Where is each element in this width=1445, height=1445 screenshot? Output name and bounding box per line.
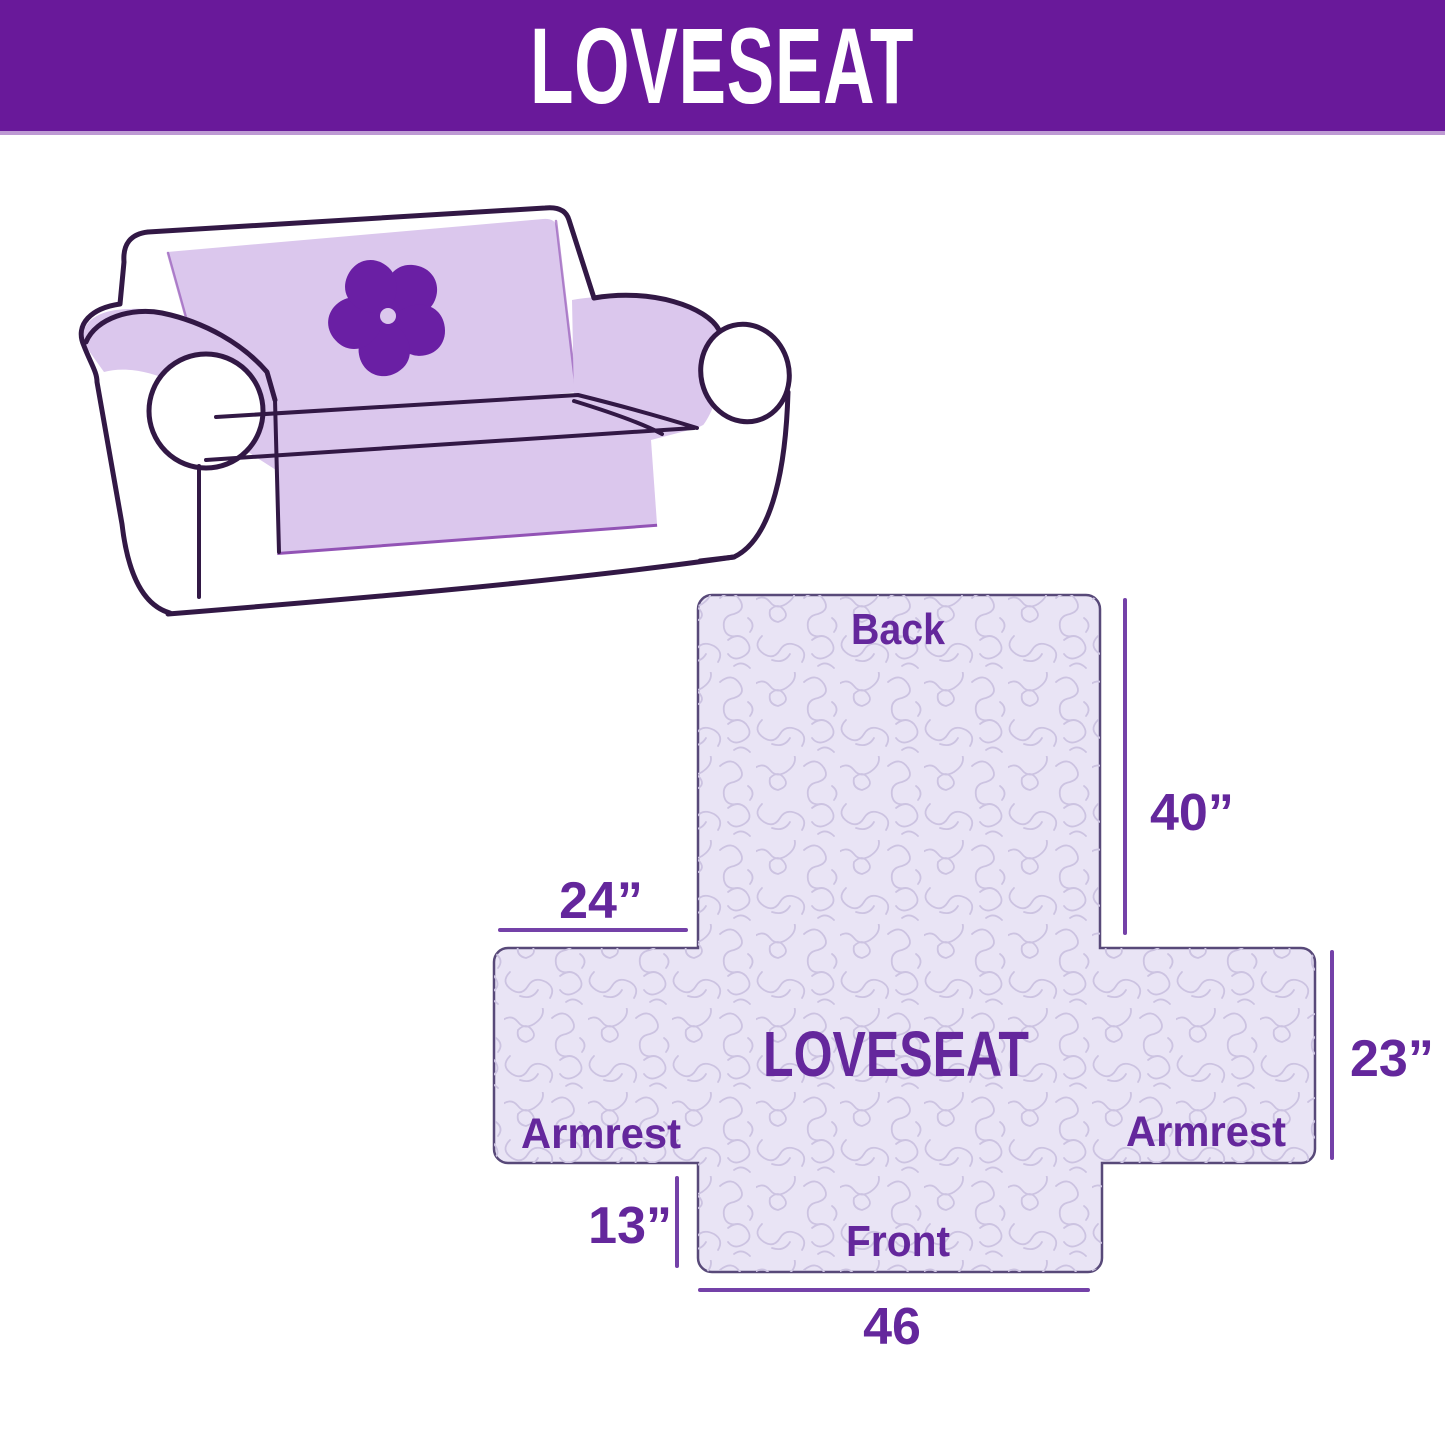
front-label: Front <box>846 1217 950 1266</box>
armrest-left-label: Armrest <box>521 1110 681 1158</box>
header-title: LOVESEAT <box>530 0 914 131</box>
loveseat-cover-infographic: LOVESEAT <box>0 0 1445 1445</box>
armrest-side-height-value: 23” <box>1350 1030 1434 1088</box>
product-label: LOVESEAT <box>763 1018 1029 1090</box>
back-height-value: 40” <box>1150 784 1234 842</box>
cover-quilt-texture <box>494 595 1315 1272</box>
cover-dimension-diagram: Back LOVESEAT Armrest Armrest Front 40” … <box>440 560 1445 1380</box>
back-label: Back <box>851 605 945 654</box>
front-skirt-height-value: 13” <box>588 1197 672 1255</box>
armrest-top-width-value: 24” <box>559 872 643 930</box>
armrest-right-label: Armrest <box>1126 1108 1286 1156</box>
front-width-value: 46 <box>863 1298 921 1356</box>
header-banner: LOVESEAT <box>0 0 1445 135</box>
